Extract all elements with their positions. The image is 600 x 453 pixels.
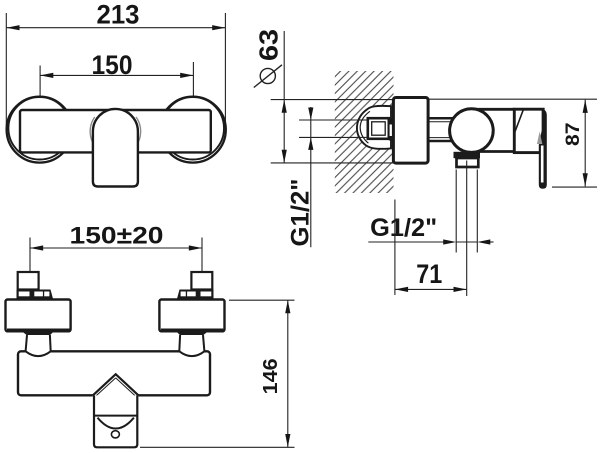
svg-text:63: 63 <box>253 29 283 61</box>
svg-text:213: 213 <box>97 0 140 30</box>
svg-text:150: 150 <box>92 50 133 80</box>
svg-text:146: 146 <box>260 358 282 394</box>
svg-text:G1/2": G1/2" <box>286 179 314 247</box>
svg-text:71: 71 <box>416 259 442 289</box>
svg-text:87: 87 <box>563 123 584 147</box>
svg-text:G1/2": G1/2" <box>370 214 437 242</box>
svg-text:150±20: 150±20 <box>70 222 164 249</box>
